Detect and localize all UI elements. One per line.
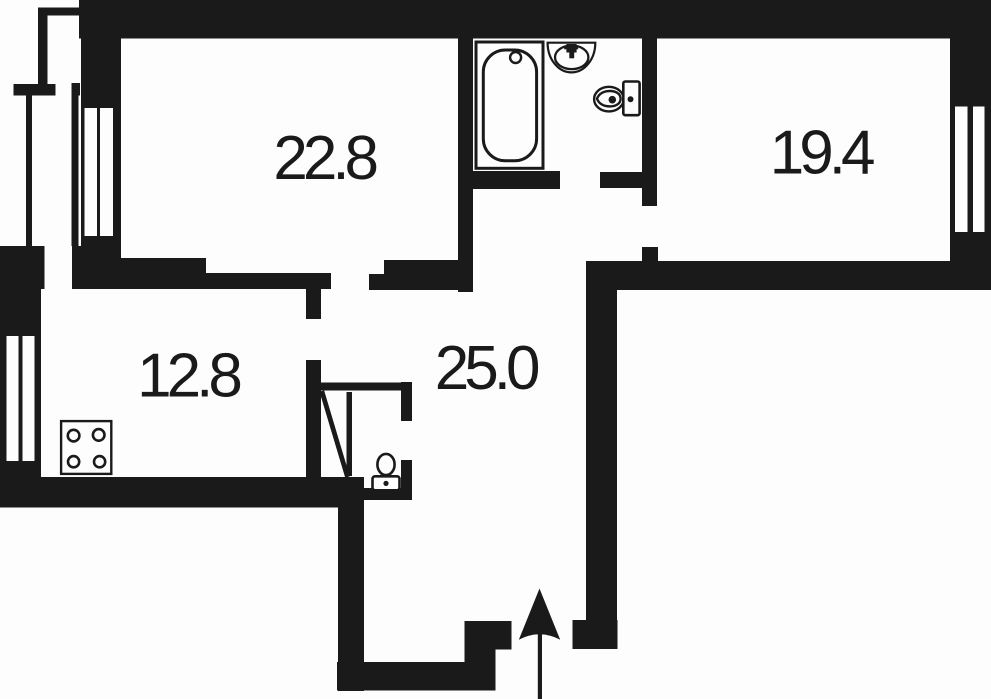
svg-text:25.0: 25.0 — [435, 334, 539, 403]
svg-text:22.8: 22.8 — [273, 124, 376, 193]
svg-text:12.8: 12.8 — [137, 341, 240, 410]
svg-text:19.4: 19.4 — [770, 118, 874, 187]
